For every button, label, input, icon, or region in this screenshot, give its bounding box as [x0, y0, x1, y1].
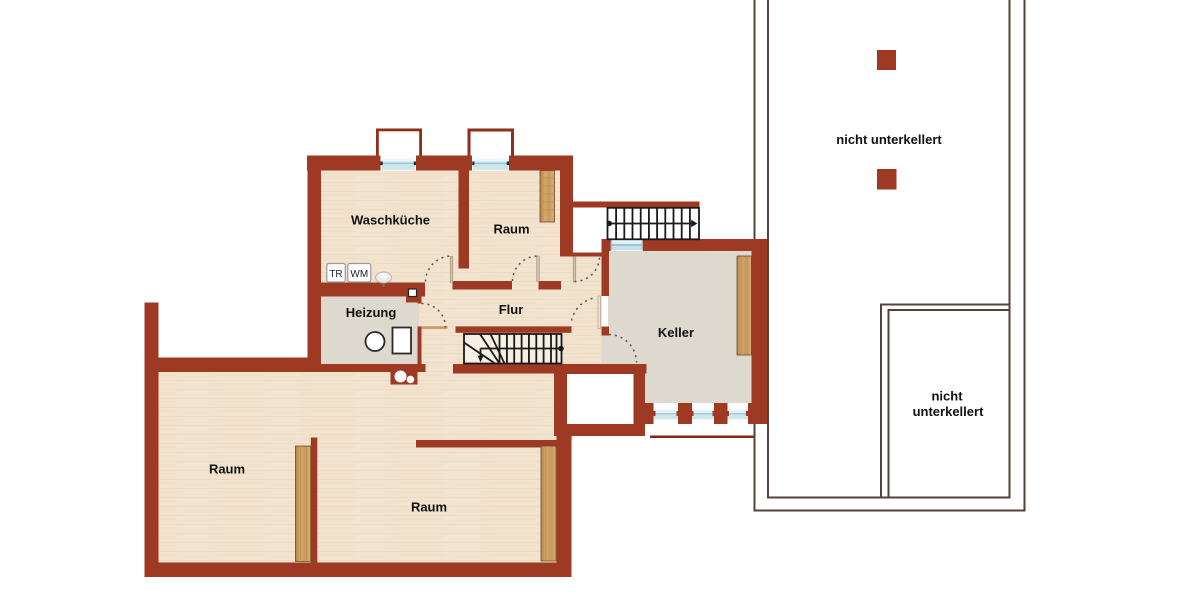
- svg-text:unterkellert: unterkellert: [913, 404, 984, 419]
- svg-text:Raum: Raum: [411, 500, 447, 515]
- svg-text:Flur: Flur: [499, 302, 524, 317]
- svg-text:Raum: Raum: [209, 462, 245, 477]
- svg-text:TR: TR: [329, 269, 342, 280]
- svg-text:nicht unterkellert: nicht unterkellert: [836, 132, 942, 147]
- svg-text:Raum: Raum: [493, 222, 529, 237]
- svg-text:nicht: nicht: [931, 389, 963, 404]
- svg-text:Waschküche: Waschküche: [351, 213, 430, 228]
- svg-text:Heizung: Heizung: [346, 305, 397, 320]
- svg-text:Keller: Keller: [658, 325, 694, 340]
- svg-text:WM: WM: [350, 269, 368, 280]
